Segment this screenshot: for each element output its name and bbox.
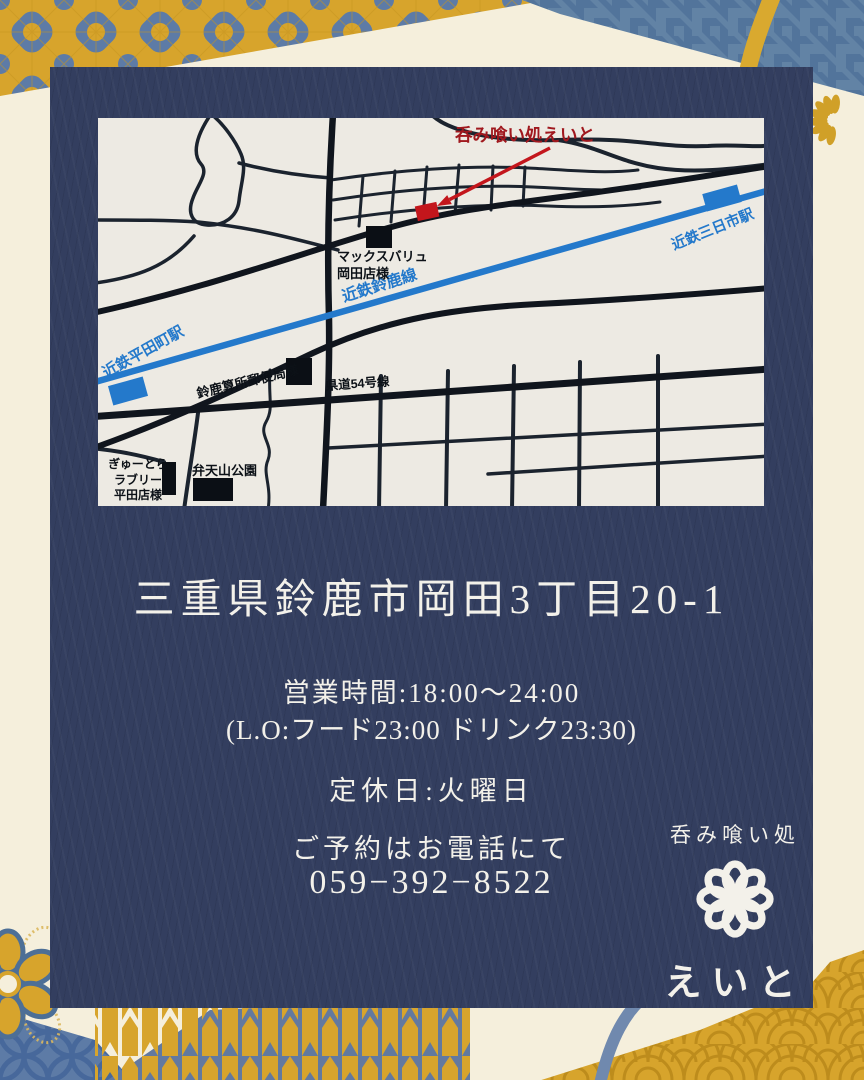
gyutora-label-2: ラブリー [114,472,162,487]
flyer-canvas: 県道54号線 近鉄平田町駅 近鉄鈴鹿線 近鉄三日市駅 [0,0,864,1080]
gyutora-label-3: 平田店様 [114,487,163,502]
minor-roads [98,118,764,506]
maxvalu-label-2: 岡田店様 [337,266,390,281]
shop-logo: 呑み喰い処 えいと [645,819,825,1006]
access-map: 県道54号線 近鉄平田町駅 近鉄鈴鹿線 近鉄三日市駅 [98,118,764,506]
info-card: 県道54号線 近鉄平田町駅 近鉄鈴鹿線 近鉄三日市駅 [50,67,813,1008]
station-left-marker [108,377,148,406]
station-right-marker [702,185,742,212]
maxvalu-label-1: マックスバリュ [337,249,428,264]
logo-tagline: 呑み喰い処 [645,819,825,849]
last-order-text: (L.O:フード23:00 ドリンク23:30) [50,708,813,747]
station-right-label: 近鉄三日市駅 [669,204,757,253]
marker-arrowhead [437,195,452,206]
gyutora-label-1: ぎゅーとら [108,456,168,471]
station-left-label: 近鉄平田町駅 [99,322,187,382]
shop-marker-label: 呑み喰い処えいと [454,125,595,145]
address-text: 三重県鈴鹿市岡田3丁目20-1 [50,565,813,625]
access-map-drawing: 県道54号線 近鉄平田町駅 近鉄鈴鹿線 近鉄三日市駅 [98,118,764,506]
closed-day-text: 定休日:火曜日 [50,769,813,808]
flower-emblem-icon [689,853,781,945]
major-roads [98,118,764,506]
park-label: 弁天山公園 [192,463,257,478]
marker-arrow [450,148,551,200]
business-hours-text: 営業時間:18:00〜24:00 [50,671,813,710]
post-office-label: 鈴鹿算所郵便局様 [195,362,301,401]
logo-shop-name: えいと [645,952,825,1006]
